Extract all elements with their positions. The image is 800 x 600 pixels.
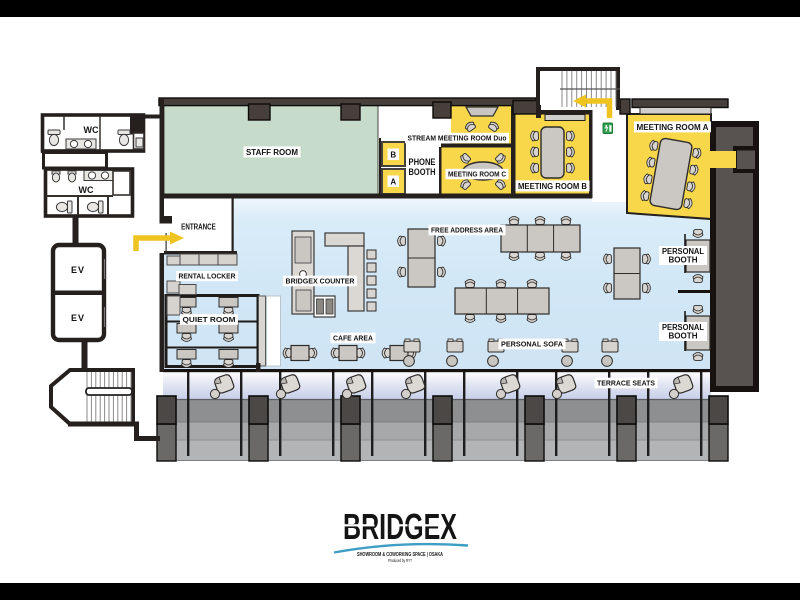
svg-text:PERSONAL SOFA: PERSONAL SOFA <box>501 340 563 349</box>
svg-text:BOOTH: BOOTH <box>669 332 698 341</box>
svg-text:PHONE: PHONE <box>409 157 436 167</box>
svg-text:MEETING ROOM B: MEETING ROOM B <box>518 182 587 191</box>
svg-text:STREAM MEETING ROOM Duo: STREAM MEETING ROOM Duo <box>408 134 507 143</box>
svg-text:Produced by RYT: Produced by RYT <box>388 558 412 563</box>
svg-text:BRIDGEX: BRIDGEX <box>343 506 457 547</box>
svg-text:EV: EV <box>71 313 85 323</box>
svg-text:WC: WC <box>84 125 99 135</box>
svg-text:QUIET ROOM: QUIET ROOM <box>183 315 236 324</box>
svg-text:EV: EV <box>71 265 85 275</box>
svg-text:WC: WC <box>79 185 94 195</box>
svg-text:RENTAL LOCKER: RENTAL LOCKER <box>179 272 237 281</box>
svg-text:MEETING ROOM A: MEETING ROOM A <box>637 123 709 132</box>
svg-text:STAFF ROOM: STAFF ROOM <box>246 148 298 157</box>
svg-text:ENTRANCE: ENTRANCE <box>181 222 216 231</box>
svg-text:TERRACE SEATS: TERRACE SEATS <box>597 379 655 388</box>
svg-text:B: B <box>390 151 396 160</box>
svg-text:A: A <box>390 178 396 187</box>
svg-text:BRIDGEX COUNTER: BRIDGEX COUNTER <box>286 277 355 286</box>
svg-text:CAFE AREA: CAFE AREA <box>333 334 373 343</box>
svg-text:MEETING ROOM C: MEETING ROOM C <box>448 170 507 179</box>
svg-text:BOOTH: BOOTH <box>409 167 436 177</box>
svg-text:BOOTH: BOOTH <box>669 256 698 265</box>
svg-text:FREE ADDRESS AREA: FREE ADDRESS AREA <box>431 226 503 235</box>
